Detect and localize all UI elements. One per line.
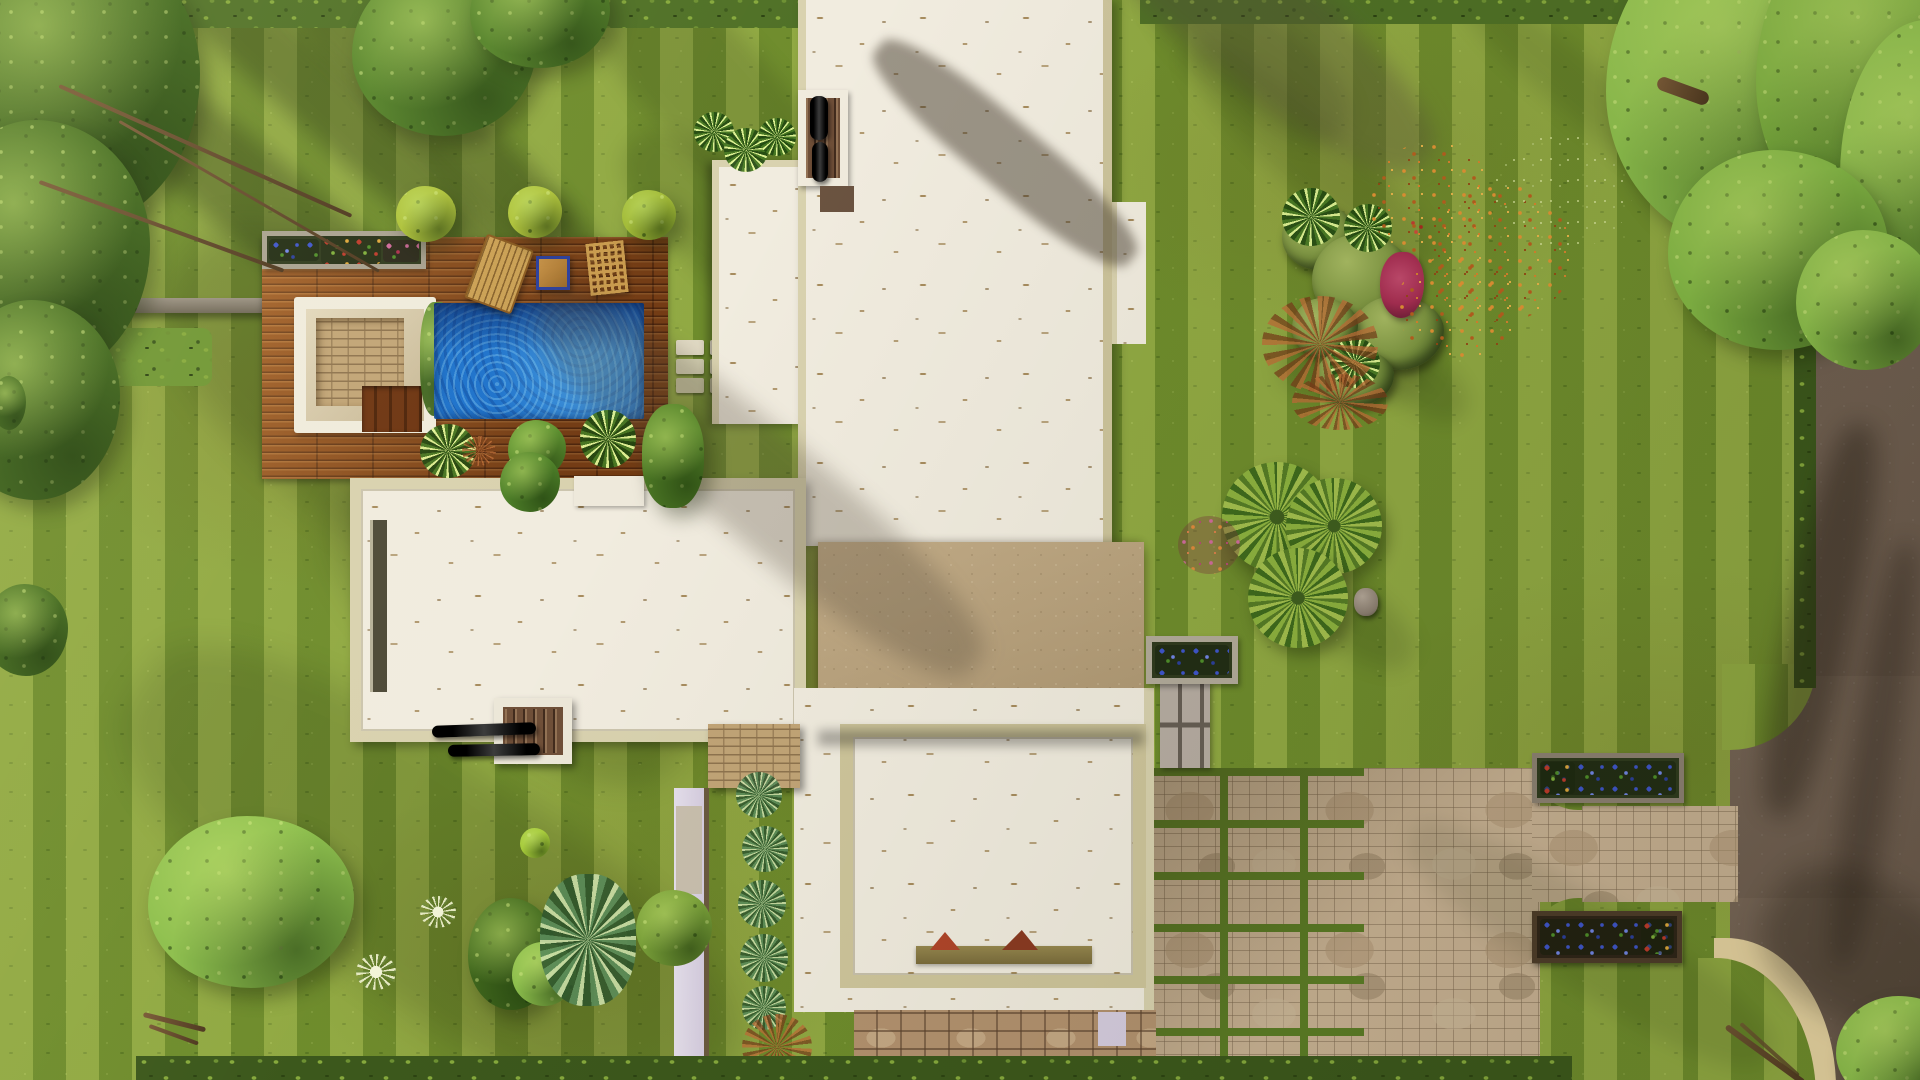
street-tree — [1796, 230, 1920, 370]
sunken-lounge-stairs — [362, 386, 422, 432]
chimney-pipe — [812, 142, 828, 182]
autumn-tree — [1396, 254, 1524, 358]
spiky-plant — [1282, 188, 1340, 246]
grass-plant — [736, 772, 782, 818]
aerial-property-render — [0, 0, 1920, 1080]
bottom-boundary-hedge — [136, 1056, 1572, 1080]
planter-flowers-blue — [269, 239, 319, 261]
grass-plant — [738, 880, 786, 928]
deck-tree — [642, 404, 704, 508]
grass-plant — [742, 826, 788, 872]
chimney-pipe — [810, 96, 828, 140]
pale-plant — [356, 954, 396, 990]
palm-tree — [1248, 548, 1348, 648]
skylight-slot — [370, 520, 387, 692]
garage-shadow — [818, 730, 1144, 746]
wispy-tree — [1492, 134, 1632, 250]
lavender-niche — [1098, 1012, 1126, 1046]
planter-flowers-blue — [1155, 645, 1229, 675]
deck-bushlet — [500, 452, 560, 512]
side-planter — [1532, 753, 1684, 803]
courtyard-slab — [676, 806, 702, 894]
entry-steps — [1160, 682, 1210, 768]
pink-flower-bush — [1178, 516, 1240, 574]
entry-planter — [1146, 636, 1238, 684]
grass-plant — [740, 934, 788, 982]
planter-flowers-mixed — [321, 236, 381, 264]
round-bush — [396, 186, 456, 242]
bottom-left-tree — [148, 816, 354, 988]
rust-grass — [1292, 374, 1388, 430]
palm-grass — [540, 874, 636, 1006]
garden-stone — [1354, 588, 1378, 616]
side-planter-dark — [1532, 911, 1682, 963]
pale-plant — [420, 896, 456, 928]
planter-flowers-mixed — [1641, 920, 1673, 954]
round-bush — [508, 186, 562, 238]
side-table — [536, 256, 570, 290]
lounger-lattice — [585, 240, 628, 296]
small-bush — [520, 828, 550, 858]
planter-flowers-pink — [383, 240, 419, 262]
planter-flowers-mixed — [1541, 762, 1575, 794]
agave — [758, 118, 796, 156]
deck-palm — [580, 410, 636, 468]
parapet-step — [574, 476, 644, 506]
courtyard-shrub — [636, 890, 712, 966]
round-bush — [622, 190, 676, 240]
chimney-base — [820, 186, 854, 212]
chimney-pipe — [448, 743, 540, 757]
rust-bushlet — [462, 436, 496, 466]
